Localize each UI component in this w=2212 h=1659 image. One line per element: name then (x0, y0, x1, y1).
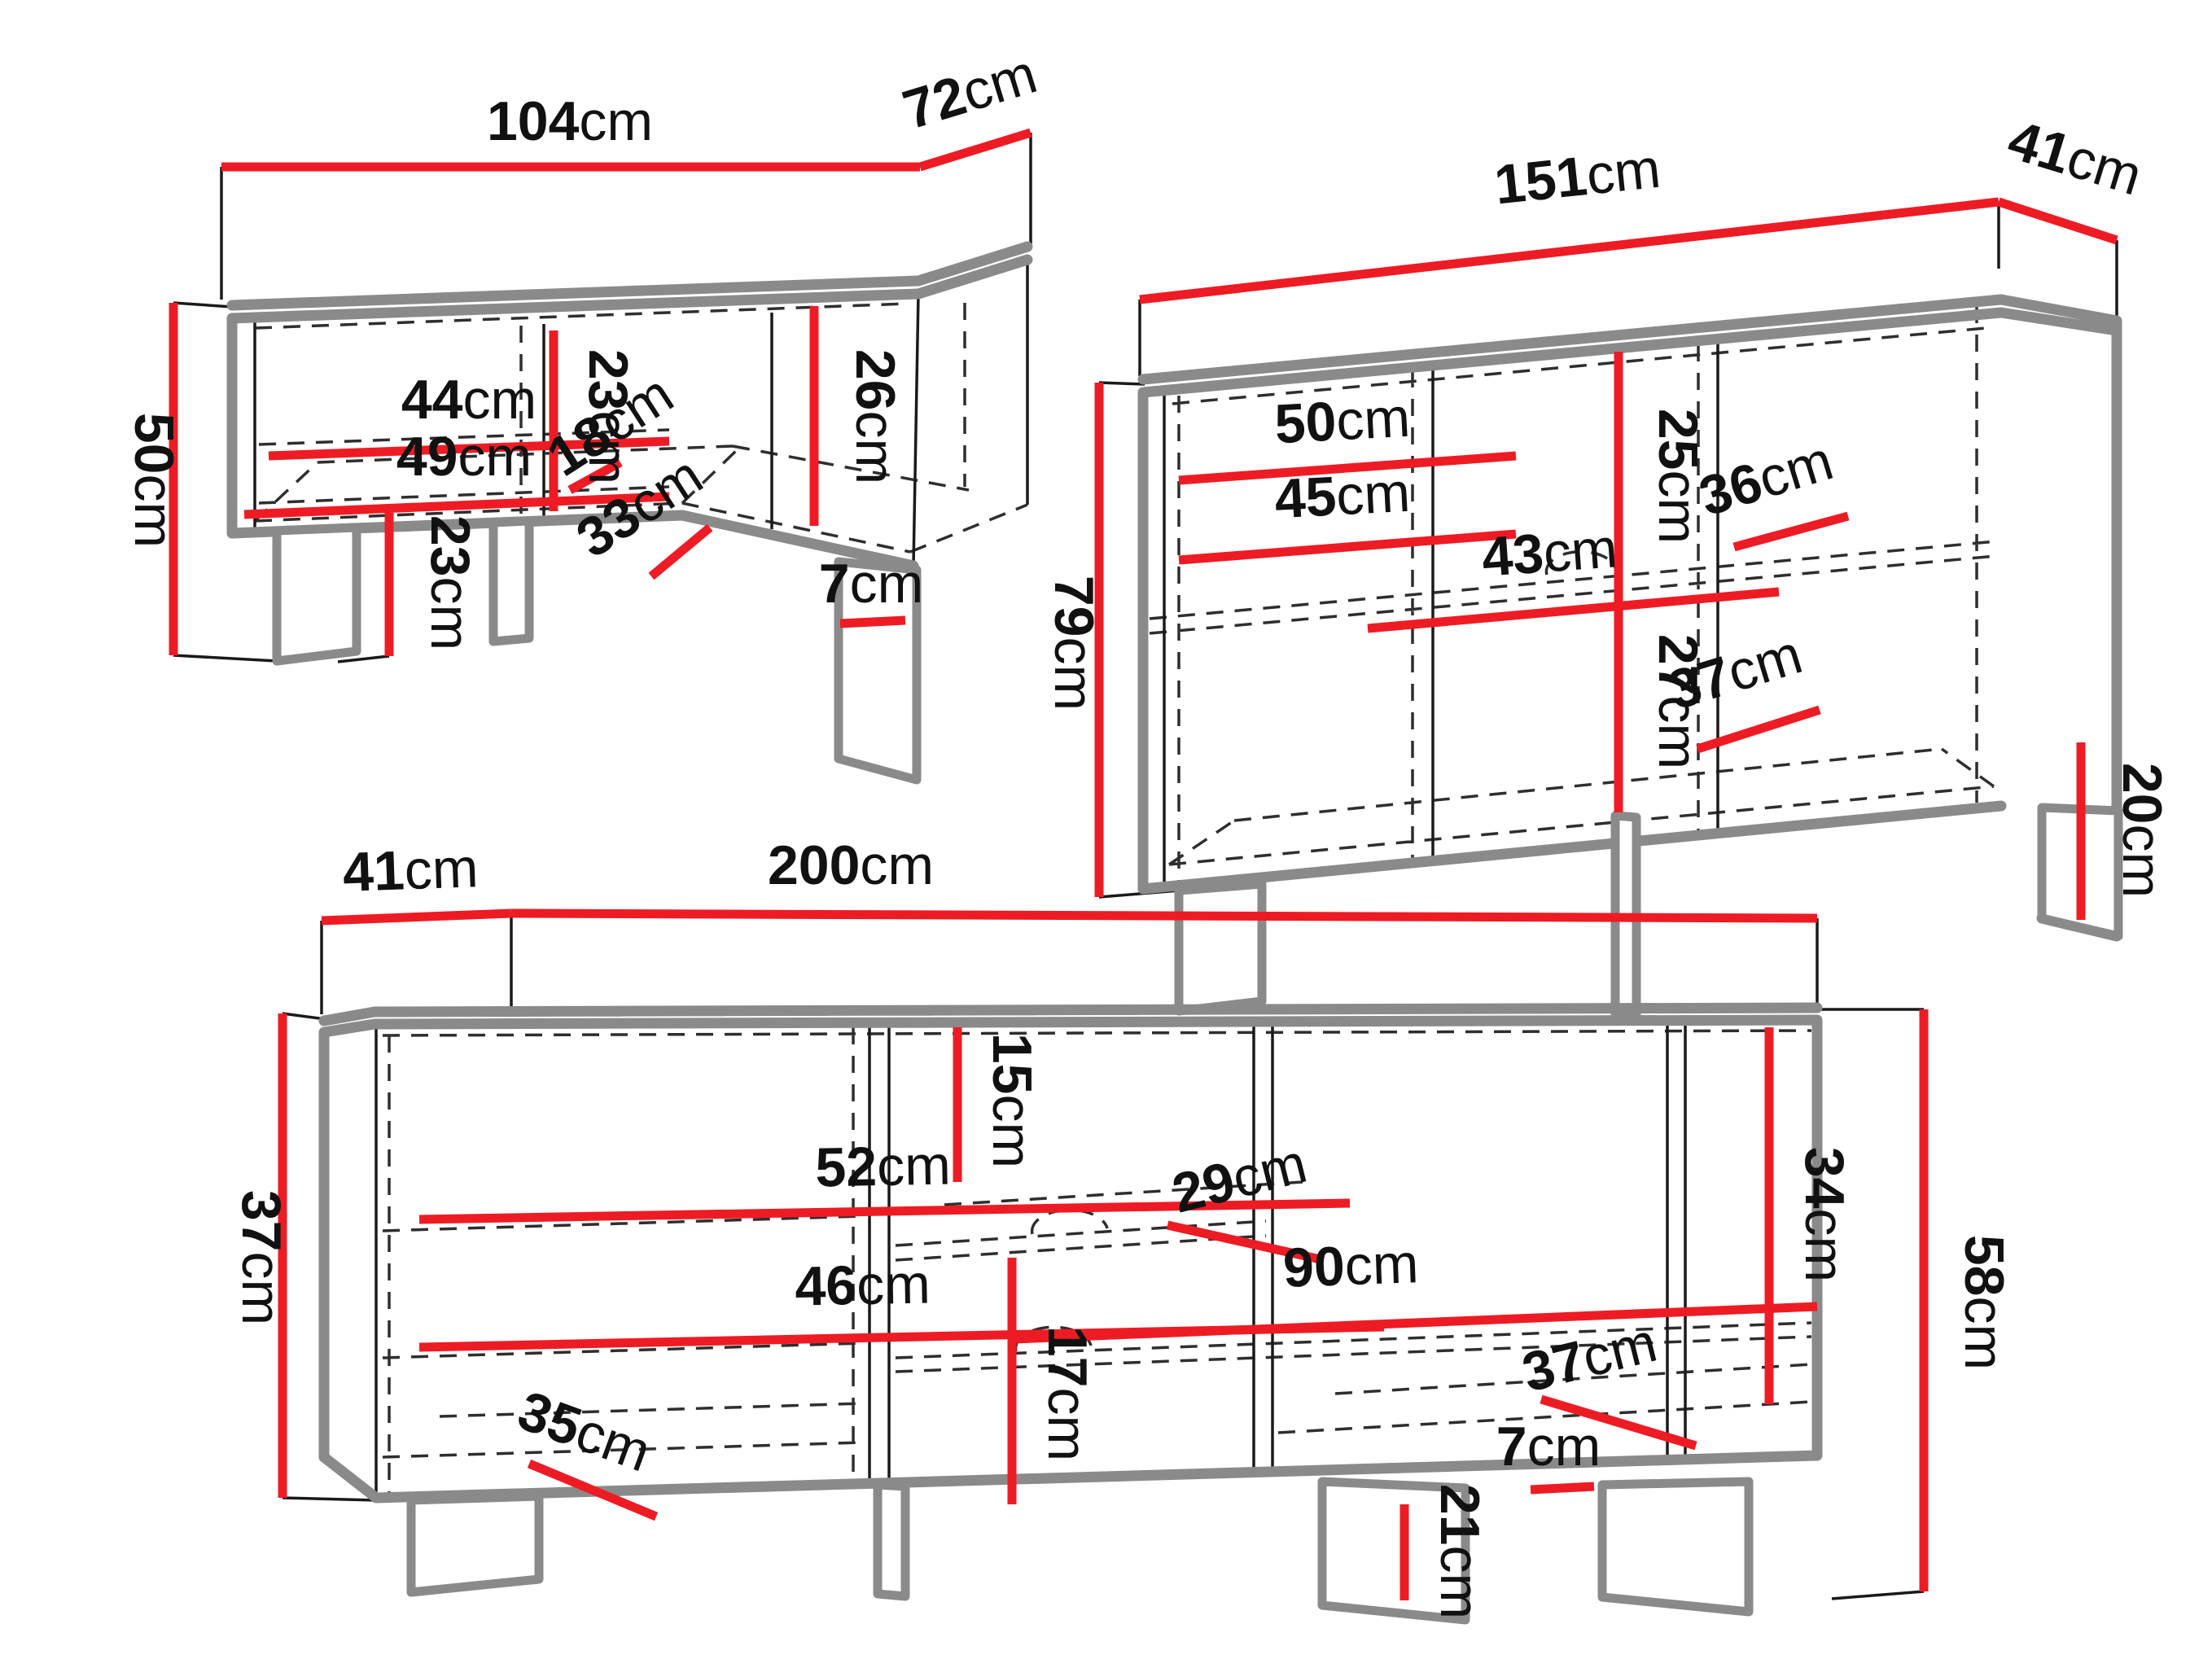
p2-dim-niche-depth-upper-label: 36cm (1693, 429, 1840, 527)
p3-dim-middle-shelf-width-label: 90cm (1282, 1232, 1420, 1299)
p3-dim-right-height-label: 58cm (1953, 1235, 2015, 1370)
p2-dim-leg-height-label: 20cm (2111, 763, 2173, 898)
p1-dim-height-label: 50cm (123, 413, 185, 548)
furniture-dimensions-diagram: 104cm 72cm 50cm 44cm 49cm 23cm 18cm 33cm… (0, 0, 2212, 1659)
p2-dim-niche-depth-lower-line (1697, 710, 1820, 749)
p3-dim-leg-height-label: 21cm (1429, 1484, 1491, 1619)
p2-dim-depth-line (1999, 202, 2117, 240)
p2-dim-width-label: 151cm (1491, 138, 1663, 217)
p3-dim-depth-line (322, 913, 511, 921)
p3-dim-width-label: 200cm (768, 834, 934, 896)
p1-dim-right-leg-height-label: 7cm (819, 553, 923, 615)
diagram-canvas: 104cm 72cm 50cm 44cm 49cm 23cm 18cm 33cm… (0, 0, 2212, 1659)
p3-dim-right-leg-height-label: 7cm (1496, 1416, 1601, 1477)
p3-dim-right-leg-height-line (1531, 1486, 1594, 1490)
p3-dim-depth-label: 41cm (342, 837, 480, 904)
p2-dim-middle-shelf-width-label: 43cm (1480, 517, 1619, 588)
piece-tv-stand: 41cm 200cm 37cm 52cm 46cm 15cm 29cm 90cm… (230, 834, 2015, 1620)
p1-dim-right-niche-height-label: 26cm (844, 349, 906, 484)
p1-dim-width-label: 104cm (487, 90, 653, 152)
p2-dim-height-label: 79cm (1043, 576, 1105, 711)
p3-dim-lower-niche-height-label: 17cm (1036, 1326, 1098, 1461)
p1-dim-depth-label: 72cm (896, 42, 1044, 141)
piece-sideboard: 151cm 41cm 79cm 50cm 45cm 25cm 43cm 27cm… (1043, 108, 2173, 1017)
p1-dim-shelf-lower-label: 49cm (396, 426, 532, 488)
p2-dim-shelf-lower-label: 45cm (1273, 462, 1412, 531)
p3-dim-middle-shelf-width-line (1014, 1307, 1817, 1339)
p3-dim-shelf-upper-label: 52cm (815, 1135, 952, 1199)
p2-dim-width-line (1140, 202, 1999, 300)
p3-dim-right-niche-height-label: 34cm (1794, 1147, 1855, 1282)
p1-dim-leg-height-label: 23cm (419, 515, 481, 650)
p1-dim-right-leg-height-line (840, 620, 905, 624)
p2-dim-depth-label: 41cm (2001, 108, 2148, 207)
p3-dim-upper-niche-height-label: 15cm (981, 1033, 1043, 1168)
p1-dim-depth-line (920, 133, 1031, 167)
p2-dim-shelf-lower-line (1179, 534, 1516, 560)
p3-dim-shelf-depth-upper-label: 29cm (1167, 1132, 1313, 1225)
p2-dim-shelf-upper-label: 50cm (1273, 387, 1412, 456)
p3-dim-width-line (511, 913, 1817, 918)
piece-corner-tv-bench: 104cm 72cm 50cm 44cm 49cm 23cm 18cm 33cm… (123, 42, 1044, 780)
p3-dim-left-height-label: 37cm (230, 1190, 292, 1325)
p1-dim-niche-width-line (651, 527, 710, 576)
p2-dim-niche-depth-upper-line (1734, 516, 1848, 547)
p3-dim-shelf-lower-label: 46cm (795, 1254, 931, 1318)
p3-dim-shelf-depth-lower-label: 37cm (1517, 1311, 1663, 1404)
p1-dim-shelf-upper-label: 44cm (401, 369, 537, 431)
